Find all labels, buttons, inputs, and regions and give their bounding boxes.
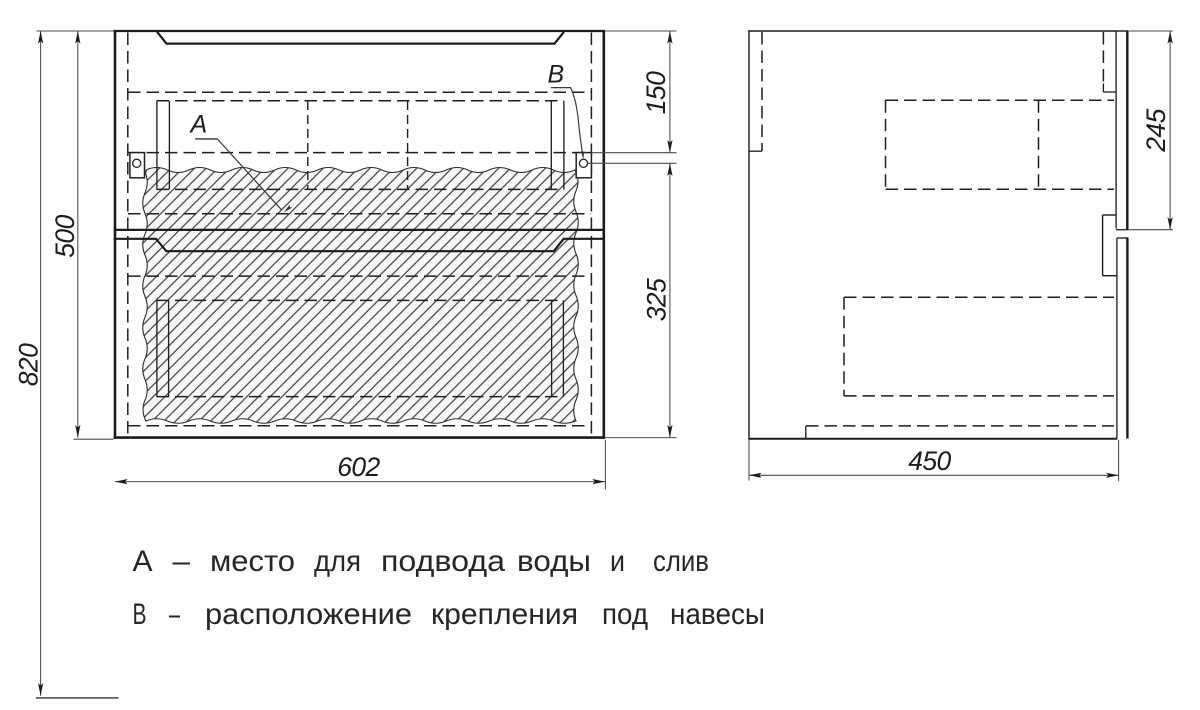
svg-text:крепления: крепления — [431, 598, 578, 631]
svg-text:слив: слив — [653, 545, 709, 578]
svg-text:для: для — [314, 545, 361, 578]
svg-text:820: 820 — [13, 343, 43, 386]
svg-text:подвода: подвода — [381, 545, 505, 578]
svg-text:245: 245 — [1141, 108, 1171, 152]
svg-text:воды: воды — [517, 545, 591, 578]
svg-text:расположение: расположение — [205, 598, 412, 631]
svg-text:A: A — [189, 111, 208, 139]
svg-text:под: под — [602, 598, 648, 631]
svg-text:–: – — [169, 598, 180, 631]
svg-text:500: 500 — [50, 214, 80, 257]
svg-text:602: 602 — [337, 452, 380, 482]
svg-text:навесы: навесы — [670, 598, 765, 631]
svg-text:и: и — [610, 545, 625, 578]
svg-text:150: 150 — [641, 71, 671, 114]
svg-text:В: В — [133, 598, 147, 631]
svg-text:А: А — [133, 545, 153, 578]
svg-text:B: B — [548, 61, 565, 89]
svg-text:325: 325 — [641, 278, 671, 321]
svg-text:450: 450 — [908, 446, 951, 476]
svg-text:–: – — [173, 545, 191, 578]
svg-text:место: место — [210, 545, 295, 578]
